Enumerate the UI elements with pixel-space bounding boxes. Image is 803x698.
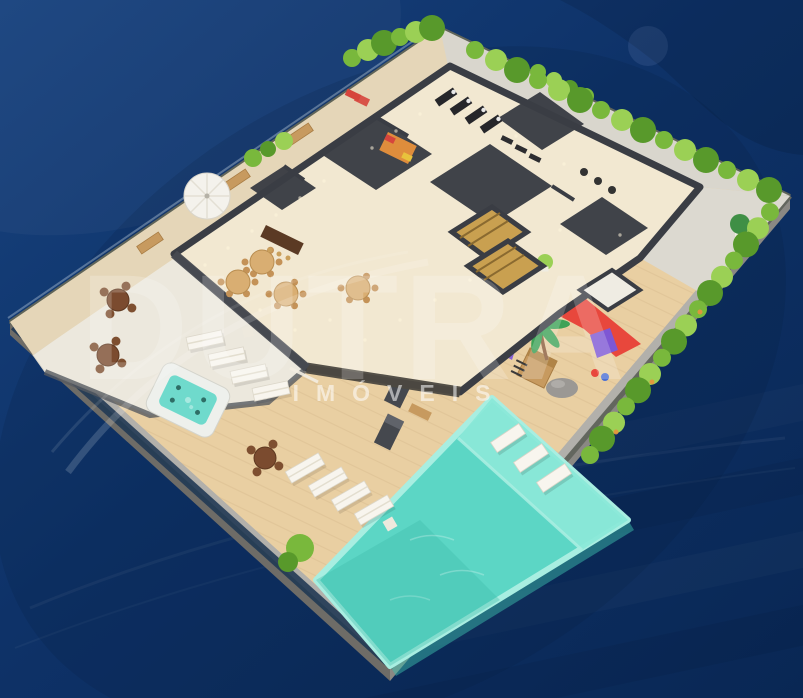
hedge-bush [737,169,759,191]
chair [274,462,283,471]
ceiling-light [562,162,565,165]
ceiling-light [250,229,253,232]
hedge-bush [529,71,547,89]
ceiling-light [370,146,373,149]
hedge-bush [581,446,599,464]
ceiling-light [418,112,421,115]
ceiling-light [226,246,229,249]
chair [106,309,115,318]
hedge-bush [504,57,530,83]
ceiling-light [433,298,436,301]
ceiling-light [293,328,296,331]
hedge-bush [548,79,570,101]
hedge-bush [485,49,507,71]
hedge-bush [567,87,593,113]
hedge-bush [725,252,743,270]
hedge-bush [756,177,782,203]
hedge-bush [466,41,484,59]
hedge-bush [761,203,779,221]
gym-machine [580,168,588,176]
hedge-bush [653,349,671,367]
floor-plan-3d-render [0,0,803,698]
ceiling-light [298,196,301,199]
chair [122,282,131,291]
spring-toy [601,373,609,381]
ceiling-light [514,134,517,137]
chair [247,446,256,455]
ceiling-light [558,228,561,231]
round-table [226,270,250,294]
hedge-bush [674,139,696,161]
screenshot-root: DUTRA IMÓVEIS [0,0,803,698]
ceiling-light [468,278,471,281]
chair [269,440,278,449]
chair [96,364,105,373]
chair [276,259,283,266]
chair [218,279,225,286]
chair [242,259,249,266]
round-table [254,447,276,469]
hedge-bush [419,15,445,41]
gym-machine [608,186,616,194]
round-table [97,344,119,366]
ceiling-light [398,318,401,321]
chair [100,288,109,297]
potted-plant [730,214,750,234]
chair [117,359,126,368]
bush [278,552,298,572]
round-table [250,250,274,274]
ceiling-light [274,213,277,216]
chair [90,343,99,352]
chair [372,285,379,292]
spring-toy [591,369,599,377]
chair [127,304,136,313]
chair [253,467,262,476]
ceiling-light [322,179,325,182]
hedge-bush [611,109,633,131]
hedge-bush [617,397,635,415]
hedge-bush [718,161,736,179]
ceiling-light [328,318,331,321]
ceiling-light [394,129,397,132]
hedge-bush [693,147,719,173]
ceiling-light [586,176,589,179]
hedge-bush [630,117,656,143]
ceiling-light [203,263,206,266]
hedge-bush [689,300,707,318]
chair [252,279,259,286]
hedge-bush [592,101,610,119]
parasol [184,173,230,219]
ceiling-light [618,233,621,236]
ceiling-light [363,338,366,341]
chair [112,337,121,346]
gym-machine [594,177,602,185]
hedge-bush [655,131,673,149]
round-table [107,289,129,311]
